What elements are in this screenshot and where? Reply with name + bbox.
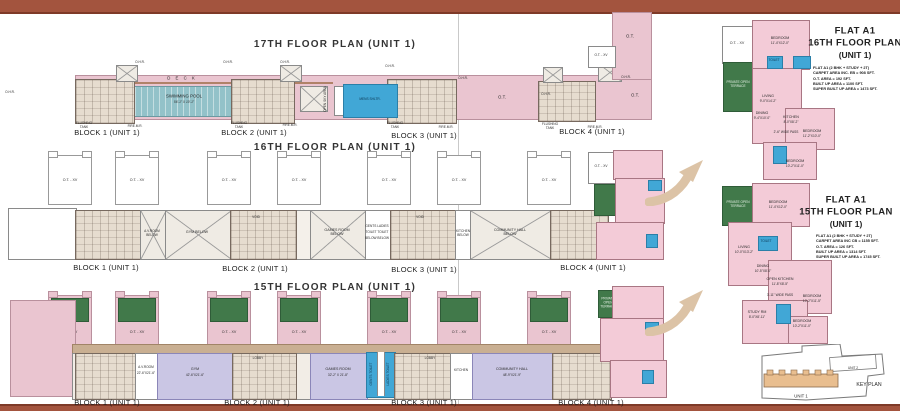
f17-block3-label: BLOCK 3 (UNIT 1)	[391, 131, 457, 140]
av-room-below-label: A.V.ROOM BELOW	[141, 230, 163, 238]
f15-block4-label: BLOCK 4 (UNIT 1)	[558, 398, 624, 407]
ot-xv-label: O.T. - XV	[542, 178, 557, 182]
dining-label: DINING	[756, 111, 769, 115]
ot-label: O.T.	[626, 33, 634, 38]
flat16-subtitle: 16TH FLOOR PLAN	[808, 37, 900, 48]
games-room-below-label: GAMES ROOM BELOW	[321, 228, 353, 236]
toilets-below-l3: BELOW BELOW	[365, 237, 389, 241]
deck-label: D E C K	[167, 75, 197, 80]
ohr-label: O.H.R.	[135, 61, 145, 65]
av-room-size: 22'-6"X21'-6"	[137, 372, 155, 376]
terrace-green	[280, 298, 318, 322]
ot-xv-label: O.T. - XV	[222, 178, 237, 182]
ot-xv-label: O.T. - XV	[130, 178, 145, 182]
f17-block1-label: BLOCK 1 (UNIT 1)	[74, 128, 140, 137]
stair-box	[116, 65, 138, 82]
f16-parapet: O.T. - XV	[48, 155, 92, 205]
top-border-bar	[0, 0, 900, 14]
flat15-subtitle: 15TH FLOOR PLAN	[799, 206, 893, 217]
kitchen-label: KITCHEN	[783, 115, 799, 119]
private-open-terrace-label: PRIVATE OPEN TERRACE	[725, 81, 751, 89]
f17-block2-cluster	[231, 79, 295, 124]
gym-label: GYM	[191, 367, 199, 371]
gym-below-area	[165, 210, 232, 260]
f16-block2-cluster	[230, 210, 297, 260]
spec-line: SUPER BUILT UP AREA = 1473 SFT.	[813, 87, 877, 92]
av-room-label: A.V.ROOM	[138, 366, 154, 370]
ot-xv-label: O.T. - XV	[595, 54, 608, 58]
f16-block4-label: BLOCK 4 (UNIT 1)	[560, 263, 626, 272]
bedroom1-size: 11'-4"X12'-0"	[769, 206, 787, 210]
open-sky-label: OPEN SKY AREA	[324, 86, 328, 112]
flat15-title: FLAT A1	[826, 194, 867, 205]
games-room-label: GAMES ROOM	[325, 367, 350, 371]
pool-size: 56'-1" X 10'-1"	[174, 101, 194, 105]
stair-box	[280, 65, 302, 82]
f16-parapet: O.T. - XV	[437, 155, 481, 205]
gym-below-label: GYM BELOW	[182, 230, 212, 234]
floor17-title: 17TH FLOOR PLAN (UNIT 1)	[254, 39, 416, 51]
pass-label: 3'-11" WIDE PASS	[767, 294, 793, 298]
terrace-green	[370, 298, 408, 322]
private-open-terrace-label: PRIVATE OPEN TERRACE	[725, 201, 751, 209]
kitchen-size: 8'-0"X8'-2"	[784, 121, 799, 125]
lobby-label: LOBBY	[425, 357, 436, 361]
f15-block2-cluster	[232, 353, 297, 400]
ot-xv-label: O.T. - XV	[130, 330, 145, 334]
pool-name: SWIMMING POOL	[166, 93, 202, 98]
gents-toilet-label: GENTS TOILET	[370, 363, 374, 386]
bedroom3-size: 10'-2"X11'-0"	[793, 325, 811, 329]
spec-line: CARPET AREA INC CB = 1155 SFT.	[816, 239, 880, 244]
toilet-box	[642, 370, 654, 384]
terrace-green	[210, 298, 248, 322]
ohr-label: O.H.R.	[541, 93, 551, 97]
f17-block4-label: BLOCK 4 (UNIT 1)	[559, 127, 625, 136]
f17-block4-cluster	[538, 81, 596, 122]
living-size: 9'-0"X14'-2"	[760, 100, 777, 104]
void-label: VOID	[416, 216, 424, 220]
f16-block1-label: BLOCK 1 (UNIT 1)	[73, 263, 139, 272]
f16-parapet: O.T. - XV	[115, 155, 159, 205]
bedroom3-label: BEDROOM	[786, 159, 805, 163]
ot-label: O.T.	[631, 92, 639, 97]
spec-line: SUPER BUILT UP AREA = 1745 SFT.	[816, 255, 880, 260]
ot-xv-label: O.T. - XV	[542, 330, 557, 334]
terrace-green	[530, 298, 568, 322]
arrow-to-flat16-icon	[645, 160, 707, 206]
ot-label: O.T.	[498, 94, 506, 99]
f15-parapet: O.T. - XV	[527, 295, 571, 347]
ot-xv-label: O.T. - XV	[452, 178, 467, 182]
ohr-label: O.H.R.	[223, 61, 233, 65]
f17-block2-label: BLOCK 2 (UNIT 1)	[221, 128, 287, 137]
bedroom2-label: BEDROOM	[803, 294, 822, 298]
ot-xv-label: O.T. - XV	[292, 330, 307, 334]
flat16-unit: (UNIT 1)	[839, 50, 872, 60]
ladies-toilet-label: LADIES TOILET	[387, 362, 391, 385]
study-label: STUDY RM	[748, 310, 767, 314]
f15-flat-a1	[610, 360, 667, 398]
keyplan-unit2-label: UNIT 2	[848, 367, 858, 371]
ot-xv-label: O.T. - XV	[382, 330, 397, 334]
key-plan	[742, 344, 900, 404]
kitchen-label: KITCHEN	[454, 369, 468, 373]
f16-left-wing-outline	[8, 208, 77, 260]
flushing-tank-label: FLUSHING TANK	[539, 123, 561, 131]
study-size: 8'-0"X8'-11"	[749, 316, 765, 320]
av-room	[135, 353, 159, 400]
f16-block2-label: BLOCK 2 (UNIT 1)	[222, 264, 288, 273]
stair-box	[543, 67, 563, 83]
toilets-below-l1: GENTS LADIES	[365, 225, 388, 229]
key-plan-unit1-building	[764, 374, 838, 387]
gym-size: 42'-6"X21'-6"	[186, 374, 204, 378]
f15-parapet: O.T. - XV	[115, 295, 159, 347]
ohr-label: O.H.R.	[458, 77, 468, 81]
open-kitchen-size: 11'-8"X8'-5"	[772, 283, 788, 287]
toilet-label: TOILET	[760, 240, 771, 244]
ohr-label: O.H.R.	[5, 91, 15, 95]
ohr-label: O.H.R.	[621, 76, 631, 80]
toilet-box	[793, 56, 811, 69]
f17-block1-cluster	[75, 79, 135, 124]
toilets-below-area	[365, 210, 392, 260]
f16-parapet: O.T. - XV	[207, 155, 251, 205]
keyplan-unit1-label: UNIT 1	[794, 393, 808, 398]
flat16-title: FLAT A1	[835, 25, 876, 36]
f15-block1-cluster	[75, 353, 137, 400]
shelter-label: MENS SHLTR.	[359, 98, 380, 102]
toilet-label: TOILET	[768, 59, 779, 63]
f16-block3-label: BLOCK 3 (UNIT 1)	[391, 265, 457, 274]
toilet-box	[776, 304, 791, 324]
floorplan-sheet: 17TH FLOOR PLAN (UNIT 1) D E C K SWIMMIN…	[0, 0, 900, 411]
bedroom3-label: BEDROOM	[793, 319, 812, 323]
ot-xv-label: O.T. - XV	[382, 178, 397, 182]
f16-block1-cluster	[75, 210, 142, 260]
f16-parapet: O.T. - XV	[277, 155, 321, 205]
living-label: LIVING	[762, 94, 774, 98]
dining-size: 10'-5"X8'-0"	[755, 270, 772, 274]
f15-parapet: O.T. - XV	[367, 295, 411, 347]
void-label: VOID	[252, 216, 260, 220]
kitchen-below-label: KITCHEN BELOW	[456, 230, 470, 238]
fire-mr-label: FIRE.M.R.	[439, 126, 454, 130]
flat15-unit: (UNIT 1)	[830, 219, 863, 229]
f15-parapet: O.T. - XV	[437, 295, 481, 347]
ot-xv-label: O.T. - XV	[595, 165, 608, 169]
terrace-green	[118, 298, 156, 322]
f16-parapet: O.T. - XV	[527, 155, 571, 205]
ohr-label: O.H.R.	[385, 65, 395, 69]
f15-block2-label: BLOCK 2 (UNIT 1)	[224, 398, 290, 407]
f16-parapet: O.T. - XV	[367, 155, 411, 205]
ot-xv-label: O.T. - XV	[222, 330, 237, 334]
pass-label: 2'-6" WIDE PASS	[774, 131, 799, 135]
community-hall-size: 48'-9"X21'-9"	[503, 374, 521, 378]
terrace-green	[440, 298, 478, 322]
f15-block1-label: BLOCK 1 (UNIT 1)	[74, 398, 140, 407]
games-room-size: 32'-2" X 21'-8"	[328, 374, 348, 378]
bedroom1-size: 11'-4"X12'-0"	[771, 42, 789, 46]
bedroom2-size: 10'-2"X11'-5"	[803, 300, 821, 304]
f15-parapet: O.T. - XV	[277, 295, 321, 347]
bedroom3-size: 10'-2"X11'-0"	[786, 165, 804, 169]
dining-size: 9'-4"X10'-0"	[754, 117, 771, 121]
spec-line: CARPET AREA INC. EB = 908 SFT.	[813, 71, 877, 76]
bedroom1-label: BEDROOM	[771, 36, 790, 40]
flushing-tank-label: FLUSHING TANK	[384, 122, 406, 130]
community-hall-below-label: COMMUNITY HALL BELOW	[490, 228, 530, 236]
living-size: 10'-0"X13'-2"	[735, 251, 753, 255]
living-label: LIVING	[738, 245, 750, 249]
open-kitchen-label: OPEN KITCHEN	[767, 277, 794, 281]
bedroom2-label: BEDROOM	[803, 129, 822, 133]
flat15-specs: FLAT A1 (2 BHK + STUDY + 2T) CARPET AREA…	[816, 234, 880, 261]
bedroom1-label: BEDROOM	[769, 200, 788, 204]
keyplan-label: KEY PLAN	[856, 382, 881, 388]
flat16-specs: FLAT A1 (2 BHK + STUDY + 2T) CARPET AREA…	[813, 66, 877, 93]
f17-tower	[612, 12, 652, 80]
f15-left-wing	[10, 300, 76, 397]
ot-xv-label: O.T. - XV	[730, 41, 745, 45]
dining-label: DINING	[757, 264, 770, 268]
ot-xv-label: O.T. - XV	[452, 330, 467, 334]
f15-block3-label: BLOCK 3 (UNIT 1)	[391, 398, 457, 407]
community-hall-label: COMMUNITY HALL	[496, 367, 528, 371]
ot-xv-label: O.T. - XV	[292, 178, 307, 182]
toilet-box	[646, 234, 658, 248]
ot-xv-label: O.T. - XV	[63, 178, 78, 182]
ohr-label: O.H.R.	[280, 61, 290, 65]
bedroom2-size: 11'-2"X10'-0"	[803, 135, 821, 139]
f15-parapet: O.T. - XV	[207, 295, 251, 347]
toilets-below-l2: TOILET TOILET	[366, 231, 389, 235]
arrow-to-flat15-icon	[645, 290, 707, 336]
kitchen-room	[450, 353, 474, 400]
toilets-stair	[377, 352, 385, 396]
lobby-label: LOBBY	[253, 357, 264, 361]
